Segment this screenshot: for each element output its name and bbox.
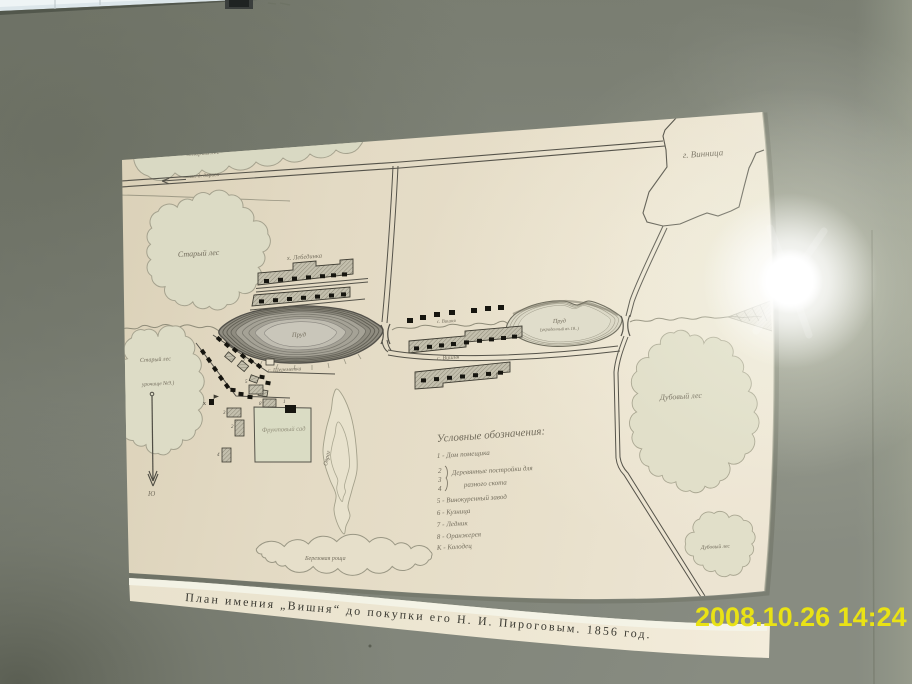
svg-text:Пруд: Пруд (291, 331, 307, 339)
svg-text:4: 4 (438, 485, 442, 493)
svg-text:2: 2 (438, 467, 442, 475)
svg-text:с. Вишня: с. Вишня (437, 319, 457, 325)
svg-text:х: х (203, 401, 206, 407)
svg-text:Пруд: Пруд (552, 318, 566, 325)
svg-text:2008.10.26 14:24: 2008.10.26 14:24 (695, 602, 907, 632)
svg-text:1: 1 (283, 400, 286, 405)
svg-text:Березовая роща: Березовая роща (304, 556, 346, 562)
svg-text:Ю: Ю (147, 490, 156, 498)
svg-text:3: 3 (437, 476, 442, 484)
